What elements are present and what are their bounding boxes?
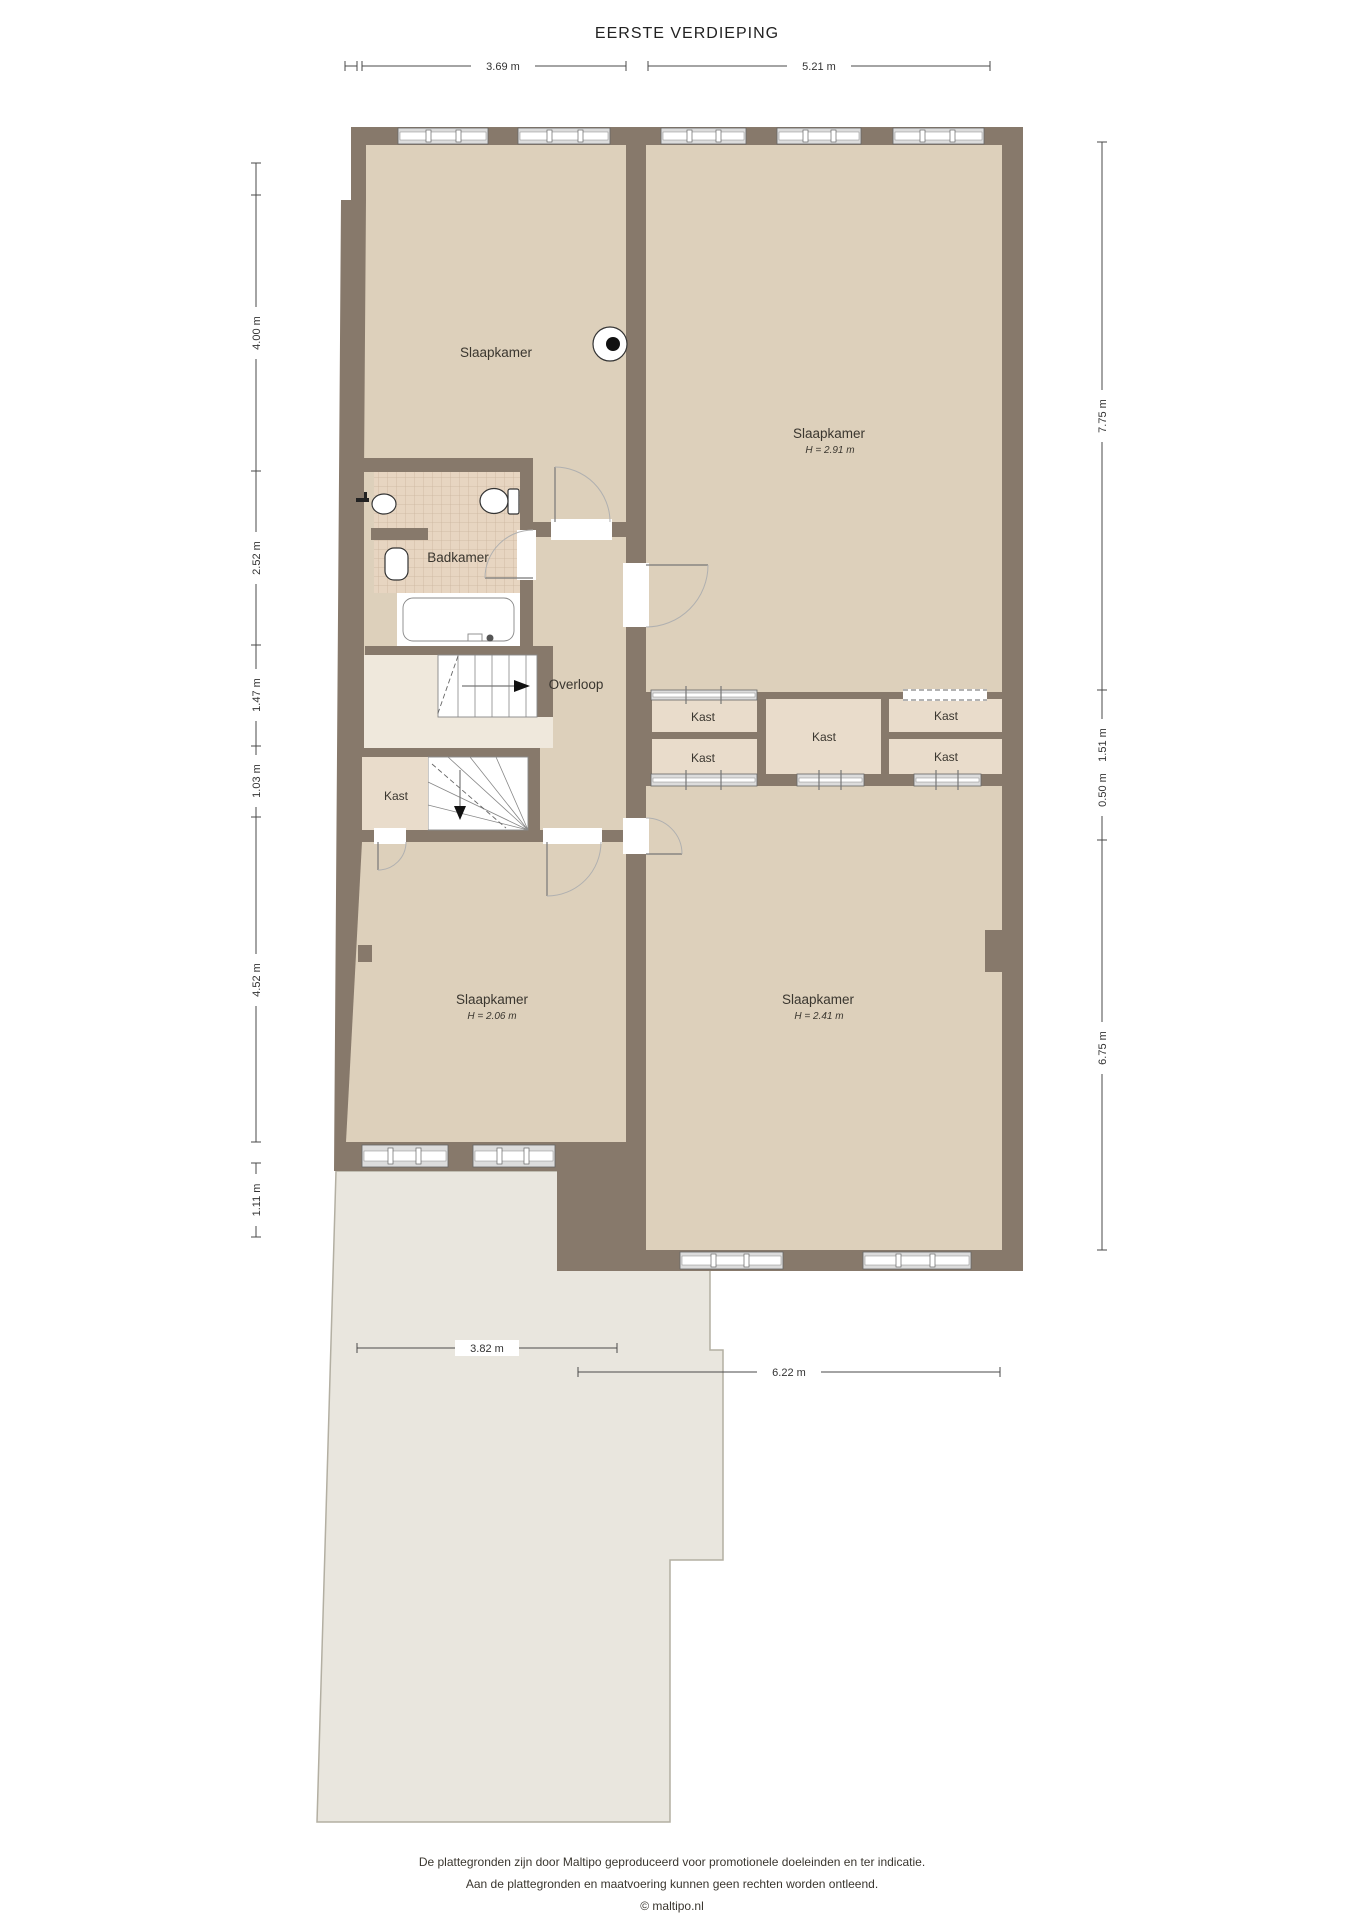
right-wall-notch xyxy=(985,930,1002,972)
footer-copyright: © maltipo.nl xyxy=(640,1899,704,1913)
toilet-icon xyxy=(480,489,519,515)
dim-left-2: 2.52 m xyxy=(251,541,263,575)
dim-right-2: 1.51 m xyxy=(1097,728,1109,762)
dim-left-5: 4.52 m xyxy=(251,963,263,997)
winder-stairs xyxy=(428,757,528,830)
divider-wall-upper xyxy=(626,145,646,563)
footer-line-1: De plattegronden zijn door Maltipo gepro… xyxy=(419,1855,925,1869)
dim-top-2: 5.21 m xyxy=(802,61,836,73)
stair-landing-strip xyxy=(364,717,553,748)
badkamer-right-wall-upper xyxy=(520,472,533,530)
label-kast-right-top: Kast xyxy=(934,709,959,723)
label-slaapkamer-bl: Slaapkamer xyxy=(456,992,529,1007)
bathtub-faucet xyxy=(468,634,482,641)
dim-right-1: 7.75 m xyxy=(1097,399,1109,433)
winder-right-wall xyxy=(528,757,540,830)
dim-right: 7.75 m 1.51 m 0.50 m 6.75 m xyxy=(1095,142,1110,1250)
left-wall-notch xyxy=(358,945,372,962)
footer-line-2: Aan de plattegronden en maatvoering kunn… xyxy=(466,1877,878,1891)
corner-wall-block xyxy=(557,1142,646,1271)
label-kast-small: Kast xyxy=(384,789,409,803)
badkamer-right-wall-lower xyxy=(520,580,533,657)
window xyxy=(863,1252,971,1269)
window xyxy=(398,128,488,144)
wall-basin-icon xyxy=(593,327,627,361)
window xyxy=(777,128,861,144)
kast-open-passage xyxy=(903,689,987,701)
dim-left-1: 4.00 m xyxy=(251,316,263,350)
label-kast-center: Kast xyxy=(812,730,837,744)
floorplan-page: EERSTE VERDIEPING xyxy=(0,0,1358,1920)
label-slaapkamer-br: Slaapkamer xyxy=(782,992,855,1007)
label-kast-left-top: Kast xyxy=(691,710,716,724)
dim-right-4: 6.75 m xyxy=(1097,1031,1109,1065)
dim-left-6: 1.11 m xyxy=(251,1184,263,1217)
bathtub xyxy=(403,598,514,641)
dim-right-3: 0.50 m xyxy=(1097,773,1109,807)
label-slaapkamer-tr: Slaapkamer xyxy=(793,426,866,441)
kast-small-top-wall xyxy=(362,748,540,757)
divider-wall-middle xyxy=(626,627,646,818)
stair-landing xyxy=(364,655,438,717)
label-overloop: Overloop xyxy=(549,677,604,692)
label-slaapkamer-bl-height: H = 2.06 m xyxy=(467,1011,516,1022)
bathtub-drain xyxy=(487,635,494,642)
label-kast-left-bottom: Kast xyxy=(691,751,716,765)
sink2-icon xyxy=(385,548,408,580)
window xyxy=(680,1252,783,1269)
dim-top-1: 3.69 m xyxy=(486,61,520,73)
footer: De plattegronden zijn door Maltipo gepro… xyxy=(419,1855,925,1913)
label-slaapkamer-br-height: H = 2.41 m xyxy=(794,1011,843,1022)
dim-bottom-1: 3.82 m xyxy=(470,1343,504,1355)
label-slaapkamer-tr-height: H = 2.91 m xyxy=(805,445,854,456)
window xyxy=(362,1145,448,1167)
room-slaapkamer-tr-floor xyxy=(646,145,1002,692)
badkamer-top-wall xyxy=(350,458,533,472)
page-title: EERSTE VERDIEPING xyxy=(595,25,779,42)
dim-bottom-2: 6.22 m xyxy=(772,1367,806,1379)
window xyxy=(661,128,746,144)
label-kast-right-bottom: Kast xyxy=(934,750,959,764)
dim-left-3: 1.47 m xyxy=(251,678,263,712)
label-badkamer: Badkamer xyxy=(427,550,489,565)
label-slaapkamer-tl: Slaapkamer xyxy=(460,345,533,360)
dim-top: 3.69 m 5.21 m xyxy=(345,58,990,74)
window xyxy=(518,128,610,144)
window xyxy=(893,128,984,144)
dim-left: 4.00 m 2.52 m 1.47 m 1.03 m 4.52 m 1.11 … xyxy=(249,163,264,1237)
dim-left-4: 1.03 m xyxy=(251,764,263,798)
floorplan-svg: EERSTE VERDIEPING xyxy=(0,0,1358,1920)
badkamer-wall-stub xyxy=(371,528,428,540)
window xyxy=(473,1145,555,1167)
